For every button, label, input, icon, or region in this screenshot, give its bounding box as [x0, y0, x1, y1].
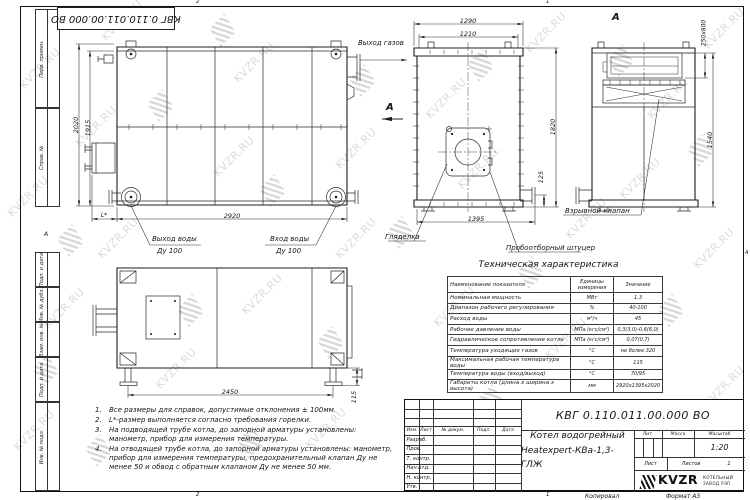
tech-cell-name: Расход воды [448, 314, 571, 325]
tb-row-nkontr: Н. контр. [407, 475, 432, 481]
dim-side-height-outer: 2020 [72, 117, 80, 134]
dim-plan-length: 2450 [222, 388, 239, 396]
frame-graph-label: Подп. и дата [39, 362, 45, 396]
note-number: 3. [95, 426, 109, 444]
tech-cell-unit: °С [571, 369, 614, 380]
tech-col-units: Единицы измерения [571, 277, 614, 293]
tb-scale-label: Масштаб [694, 431, 745, 438]
note-number: 2. [95, 416, 109, 425]
note-text: На отводящей трубе котла, до запорной ар… [109, 445, 397, 472]
dim-front-height: 1820 [549, 119, 557, 136]
tech-cell-val: 40-100 [614, 303, 663, 314]
note-item: 3.На подводящей трубе котла, до запорной… [95, 426, 397, 444]
frame-graph-inv-dubl: Инв. № дубл. [35, 287, 60, 322]
tech-cell-name: Диапазон рабочего регулирования [448, 303, 571, 314]
tech-cell-name: Гидравлическое сопротивление котла [448, 335, 571, 346]
dim-front-pipe: 125 [537, 171, 545, 183]
tech-cell-name: Температура уходящих газов [448, 345, 571, 356]
sight-glass-label: Гляделка [385, 233, 420, 241]
dim-side-length: 2920 [224, 212, 241, 220]
frame-graph-label: Подп. и дата [39, 252, 45, 286]
tech-cell-val: 0,07(0,7) [614, 335, 663, 346]
tb-col-izm: Изм. [405, 427, 419, 435]
kvzr-logo-sub1: КОТЕЛЬНЫЙ [703, 475, 733, 480]
gas-outlet-label: Выход газов [358, 39, 404, 47]
drawing-sheet: KVZR.RUKVZR.RUKVZR.RUKVZR.RUKVZR.RUKVZR.… [0, 0, 750, 500]
zone-mark: 2 [196, 492, 200, 498]
frame-graph-inv-podl: Инв. № подл. [35, 402, 60, 491]
tech-cell-name: Габариты котла (длина х ширина х высота) [448, 380, 571, 393]
tech-cell-val: 45 [614, 314, 663, 325]
note-item: 1.Все размеры для справок, допустимые от… [95, 406, 397, 415]
section-view-drawing [563, 42, 716, 215]
copied-label: Копировал [585, 493, 619, 500]
tb-mass-label: Масса [662, 431, 694, 438]
tech-cell-unit: мм [571, 380, 614, 393]
tech-table-row: Температура уходящих газов°Сне более 320 [448, 345, 663, 356]
frame-graph-label: Перв. примен. [39, 40, 45, 78]
note-text: Все размеры для справок, допустимые откл… [109, 406, 397, 415]
tech-cell-val: не более 320 [614, 345, 663, 356]
tech-cell-name: Рабочее давление воды [448, 324, 571, 335]
tech-table: Наименование показателя Единицы измерени… [447, 276, 663, 393]
tech-cell-val: 0,3(3,0)-0,6(6,0) [614, 324, 663, 335]
tb-row-tkontr: Т. контр. [407, 456, 431, 462]
tech-cell-unit: °С [571, 345, 614, 356]
tech-cell-unit: % [571, 303, 614, 314]
side-view-drawing [76, 41, 407, 245]
tech-table-row: Температура воды (вход/выход)°С70/95 [448, 369, 663, 380]
note-text: L*-размер выполняется согласно требовани… [109, 416, 397, 425]
zone-letter: А [44, 231, 48, 238]
dim-side-l: L* [101, 212, 107, 219]
tech-cell-unit: МВт [571, 293, 614, 304]
frame-graph-label: Справ. № [39, 145, 45, 169]
note-item: 2.L*-размер выполняется согласно требова… [95, 416, 397, 425]
dim-front-width-outer: 1290 [460, 17, 477, 25]
tb-sheets-label: Листов [667, 458, 715, 469]
tech-table-title: Техническая характеристика [447, 260, 650, 270]
tech-cell-name: Максимальная рабочая температура воды [448, 356, 571, 369]
format-label: Формат А3 [666, 493, 700, 500]
water-inlet-label: Вход воды [270, 235, 309, 243]
section-view-title: А [612, 12, 620, 23]
zone-letter: А [745, 250, 748, 256]
explosion-valve-label: Взрывной клапан [565, 207, 630, 215]
tb-scale-value: 1:20 [694, 438, 745, 457]
tech-cell-unit: МПа (кгс/см²) [571, 324, 614, 335]
dim-side-height-inner: 1915 [84, 120, 92, 137]
note-number: 1. [95, 406, 109, 415]
note-item: 4.На отводящей трубе котла, до запорной … [95, 445, 397, 472]
tb-col-podp: Подп. [473, 427, 495, 435]
title-block: Изм. Лист № докум. Подп. Дата Разраб. Пр… [404, 399, 744, 491]
tb-product-name-1: Котел водогрейный [530, 429, 625, 443]
tech-cell-name: Температура воды (вход/выход) [448, 369, 571, 380]
tech-table-row: Расход водым³/ч45 [448, 314, 663, 325]
tech-table-row: Номинальная мощностьМВт1,3 [448, 293, 663, 304]
tech-table-row: Рабочее давление водыМПа (кгс/см²)0,3(3,… [448, 324, 663, 335]
frame-graph-label: Взам. инв. № [39, 323, 45, 357]
zone-mark: 2 [196, 0, 200, 5]
tech-col-name: Наименование показателя [448, 277, 571, 293]
dim-plan-foot: 115 [350, 391, 358, 403]
plan-view-drawing [93, 268, 362, 398]
tb-row-nachotd: Нач.отд. [407, 465, 430, 471]
tech-cell-unit: м³/ч [571, 314, 614, 325]
kvzr-logo-sub2: ЗАВОД РЭП [703, 481, 731, 486]
tb-lit-label: Лит. [634, 431, 662, 438]
tech-table-row: Гидравлическое сопротивление котлаМПа (к… [448, 335, 663, 346]
sampling-fitting-label: Пробоотборный штуцер [506, 244, 595, 252]
tb-row-utv: Утв. [407, 484, 418, 490]
zone-mark: 1 [546, 0, 550, 5]
dim-section-duct: 250x800 [701, 20, 708, 46]
kvzr-logo-icon [640, 475, 657, 489]
frame-graph-sprav-no: Справ. № [35, 108, 60, 207]
note-number: 4. [95, 445, 109, 472]
kvzr-logo-text: KVZR [658, 472, 698, 487]
frame-graph-label: Инв. № дубл. [39, 287, 45, 321]
top-stamp-rotated: КВГ 0.110.011.00.000 ВО [57, 7, 175, 30]
tb-col-list: Лист [419, 427, 433, 435]
note-text: На подводящей трубе котла, до запорной а… [109, 426, 397, 444]
frame-graph-vzam-inv: Взам. инв. № [35, 322, 60, 357]
water-outlet-label: Выход воды [152, 235, 197, 243]
zone-mark: 1 [546, 492, 550, 498]
tb-row-prov: Пров. [407, 446, 422, 452]
frame-graph-label: Инв. № подл. [39, 429, 45, 464]
section-arrow-mark: А [386, 102, 394, 113]
dim-section-height: 1540 [706, 132, 714, 149]
water-inlet-dn: Ду 100 [276, 247, 301, 255]
tech-table-row: Диапазон рабочего регулирования%40-100 [448, 303, 663, 314]
front-view-drawing [388, 21, 581, 252]
top-stamp-text: КВГ 0.110.011.00.000 ВО [51, 13, 181, 24]
tech-cell-val: 2920х1395х2020 [614, 380, 663, 393]
tb-col-data: Дата [495, 427, 521, 435]
tech-cell-val: 70/95 [614, 369, 663, 380]
notes-block: 1.Все размеры для справок, допустимые от… [95, 406, 397, 473]
tech-table-row: Габариты котла (длина х ширина х высота)… [448, 380, 663, 393]
tech-col-value: Значение [614, 277, 663, 293]
tech-cell-val: 1,3 [614, 293, 663, 304]
tech-cell-unit: МПа (кгс/см²) [571, 335, 614, 346]
tech-cell-name: Номинальная мощность [448, 293, 571, 304]
tech-cell-unit: °С [571, 356, 614, 369]
tb-row-razrab: Разраб. [407, 437, 427, 443]
dim-front-base: 1395 [468, 215, 485, 223]
tech-cell-val: 115 [614, 356, 663, 369]
frame-graph-podp-data-1: Подп. и дата [35, 252, 60, 287]
tb-product-name-2: Heatexpert-КВа-1,3-ГЛЖ [521, 444, 634, 473]
tb-sheet-label: Лист [634, 458, 667, 469]
tb-col-docnum: № докум. [433, 427, 473, 435]
water-outlet-dn: Ду 100 [157, 247, 182, 255]
tb-sheets-value: 1 [715, 458, 743, 469]
dim-front-width-inner: 1210 [460, 30, 477, 38]
frame-graph-podp-data-2: Подп. и дата [35, 357, 60, 402]
tb-doc-number: КВГ 0.110.011.00.000 ВО [521, 400, 745, 430]
tech-table-row: Максимальная рабочая температура воды°С1… [448, 356, 663, 369]
